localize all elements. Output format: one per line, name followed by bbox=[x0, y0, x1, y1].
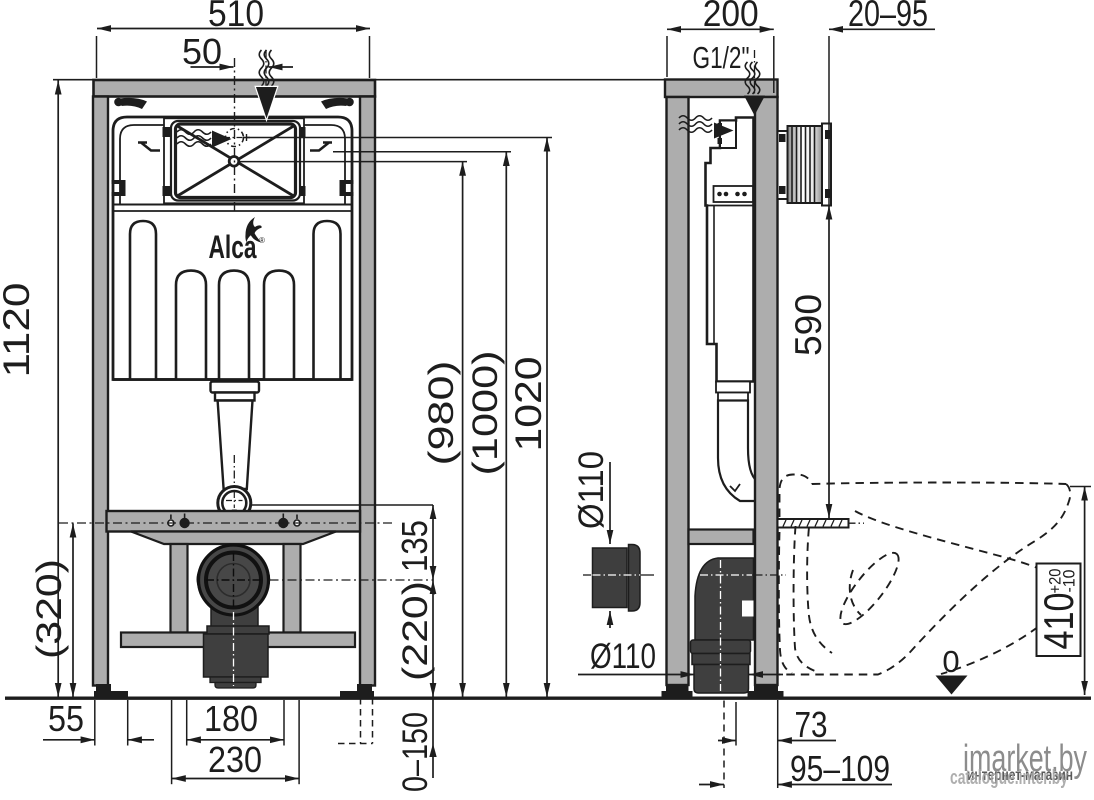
svg-text:50: 50 bbox=[182, 31, 222, 72]
svg-text:Ø110: Ø110 bbox=[572, 451, 611, 529]
svg-text:230: 230 bbox=[208, 739, 262, 780]
svg-text:(320): (320) bbox=[30, 559, 69, 659]
svg-text:410: 410 bbox=[1035, 593, 1082, 650]
svg-text:590: 590 bbox=[788, 294, 829, 356]
svg-text:(220): (220) bbox=[396, 581, 435, 681]
svg-text:95–109: 95–109 bbox=[790, 748, 890, 789]
svg-text:200: 200 bbox=[703, 0, 759, 34]
svg-text:0: 0 bbox=[942, 644, 959, 679]
svg-text:®: ® bbox=[259, 236, 265, 245]
svg-text:catalogue.inter.by: catalogue.inter.by bbox=[950, 767, 1069, 789]
svg-text:55: 55 bbox=[48, 698, 84, 739]
svg-text:135: 135 bbox=[394, 520, 435, 572]
svg-text:Ø110: Ø110 bbox=[590, 637, 656, 676]
svg-text:1120: 1120 bbox=[0, 283, 37, 378]
svg-text:(1000): (1000) bbox=[466, 351, 505, 476]
svg-text:180: 180 bbox=[204, 698, 258, 739]
svg-text:20–95: 20–95 bbox=[848, 0, 928, 34]
svg-text:1020: 1020 bbox=[508, 357, 549, 452]
svg-text:-10: -10 bbox=[1061, 570, 1079, 593]
svg-text:0–150: 0–150 bbox=[396, 712, 435, 792]
svg-text:73: 73 bbox=[795, 704, 828, 745]
svg-text:510: 510 bbox=[208, 0, 264, 34]
svg-text:(980): (980) bbox=[422, 361, 461, 466]
svg-text:G1/2": G1/2" bbox=[693, 40, 750, 75]
